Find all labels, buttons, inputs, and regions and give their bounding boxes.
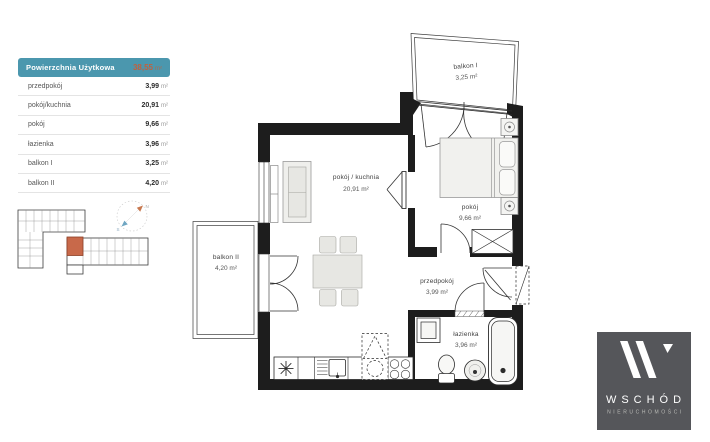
brand-subtitle: NIERUCHOMOŚCI — [607, 408, 684, 416]
wardrobe-icon — [472, 230, 513, 254]
kitchen-counter-icon — [274, 334, 413, 380]
area-row: przedpokój 3,99m² — [18, 77, 170, 96]
north-arrow-icon — [137, 206, 143, 212]
room-name: pokój — [28, 121, 45, 128]
area-table: Powierzchnia Użytkowa 38,55m² przedpokój… — [18, 58, 170, 193]
area-row: balkon II 4,20m² — [18, 174, 170, 193]
brand-logo: WSCHÓD NIERUCHOMOŚCI — [597, 332, 691, 430]
highlighted-unit — [67, 237, 83, 256]
room-name: przedpokój — [28, 83, 62, 90]
compass-north-label: N — [146, 204, 149, 209]
area-row: pokój/kuchnia 20,91m² — [18, 96, 170, 115]
area-row: łazienka 3,96m² — [18, 135, 170, 154]
flat-card: N S balkon I 3,25 m² balkon II 4,20 m² — [0, 0, 710, 442]
balcony-2: balkon II 4,20 m² — [193, 222, 258, 339]
bathtub-icon — [489, 318, 518, 386]
door-bathroom-icon — [455, 283, 484, 317]
room-area: 4,20m² — [145, 180, 168, 187]
room-label-pokoj: pokój 9,66 m² — [459, 204, 482, 222]
compass-south-label: S — [117, 227, 120, 232]
room-label-lazienka: łazienka 3,96 m² — [453, 331, 479, 349]
radiator-icon — [271, 166, 279, 223]
sofa-icon — [283, 162, 311, 223]
door-living-bedroom-icon — [387, 172, 406, 209]
area-row: balkon I 3,25m² — [18, 155, 170, 174]
room-name: balkon I — [28, 160, 53, 167]
chair-icon — [342, 290, 359, 307]
room-name: pokój/kuchnia — [28, 102, 71, 109]
chair-icon — [320, 237, 337, 254]
hob-asterisk-icon — [279, 361, 294, 376]
svg-text:3,99 m²: 3,99 m² — [426, 289, 449, 296]
brand-mark-icon — [620, 341, 673, 378]
svg-text:9,66 m²: 9,66 m² — [459, 215, 482, 222]
entrance-door-icon — [483, 266, 529, 304]
brand-name: WSCHÓD — [606, 393, 686, 406]
washbasin-icon — [465, 360, 486, 381]
balcony-1: balkon I 3,25 m² — [411, 34, 519, 115]
room-area: 3,99m² — [145, 83, 168, 90]
svg-text:3,96 m²: 3,96 m² — [455, 342, 478, 349]
balcony-door-living-icon — [259, 254, 298, 312]
svg-text:przedpokój: przedpokój — [420, 278, 454, 285]
compass: N S — [117, 201, 149, 232]
bed-icon — [440, 138, 518, 198]
window-left — [259, 162, 278, 223]
total-area-label: Powierzchnia Użytkowa — [26, 63, 115, 72]
room-area: 20,91m² — [141, 102, 168, 109]
toilet-icon — [439, 355, 455, 383]
svg-text:balkon II: balkon II — [213, 254, 239, 261]
room-area: 3,96m² — [145, 141, 168, 148]
door-bedroom-icon — [441, 224, 470, 253]
room-area: 3,25m² — [145, 160, 168, 167]
room-label-przedpokoj: przedpokój 3,99 m² — [420, 278, 454, 296]
nightstand-icon — [501, 119, 518, 136]
svg-text:pokój / kuchnia: pokój / kuchnia — [333, 174, 380, 181]
chair-icon — [340, 237, 357, 254]
dining-table-icon — [313, 237, 362, 307]
fridge-icon — [362, 334, 388, 380]
svg-text:łazienka: łazienka — [453, 331, 479, 338]
nightstand-icon — [501, 198, 518, 215]
chair-icon — [320, 290, 337, 307]
svg-text:4,20 m²: 4,20 m² — [215, 265, 238, 272]
area-table-header: Powierzchnia Użytkowa 38,55m² — [18, 58, 170, 77]
area-row: pokój 9,66m² — [18, 116, 170, 135]
room-area: 9,66m² — [145, 121, 168, 128]
svg-text:20,91 m²: 20,91 m² — [343, 186, 369, 193]
washing-machine-icon — [417, 318, 440, 343]
room-label-pokoj-kuchnia: pokój / kuchnia 20,91 m² — [333, 174, 380, 193]
total-area-value: 38,55m² — [133, 63, 162, 72]
svg-text:pokój: pokój — [462, 204, 479, 211]
room-name: łazienka — [28, 141, 54, 148]
room-name: balkon II — [28, 180, 54, 187]
